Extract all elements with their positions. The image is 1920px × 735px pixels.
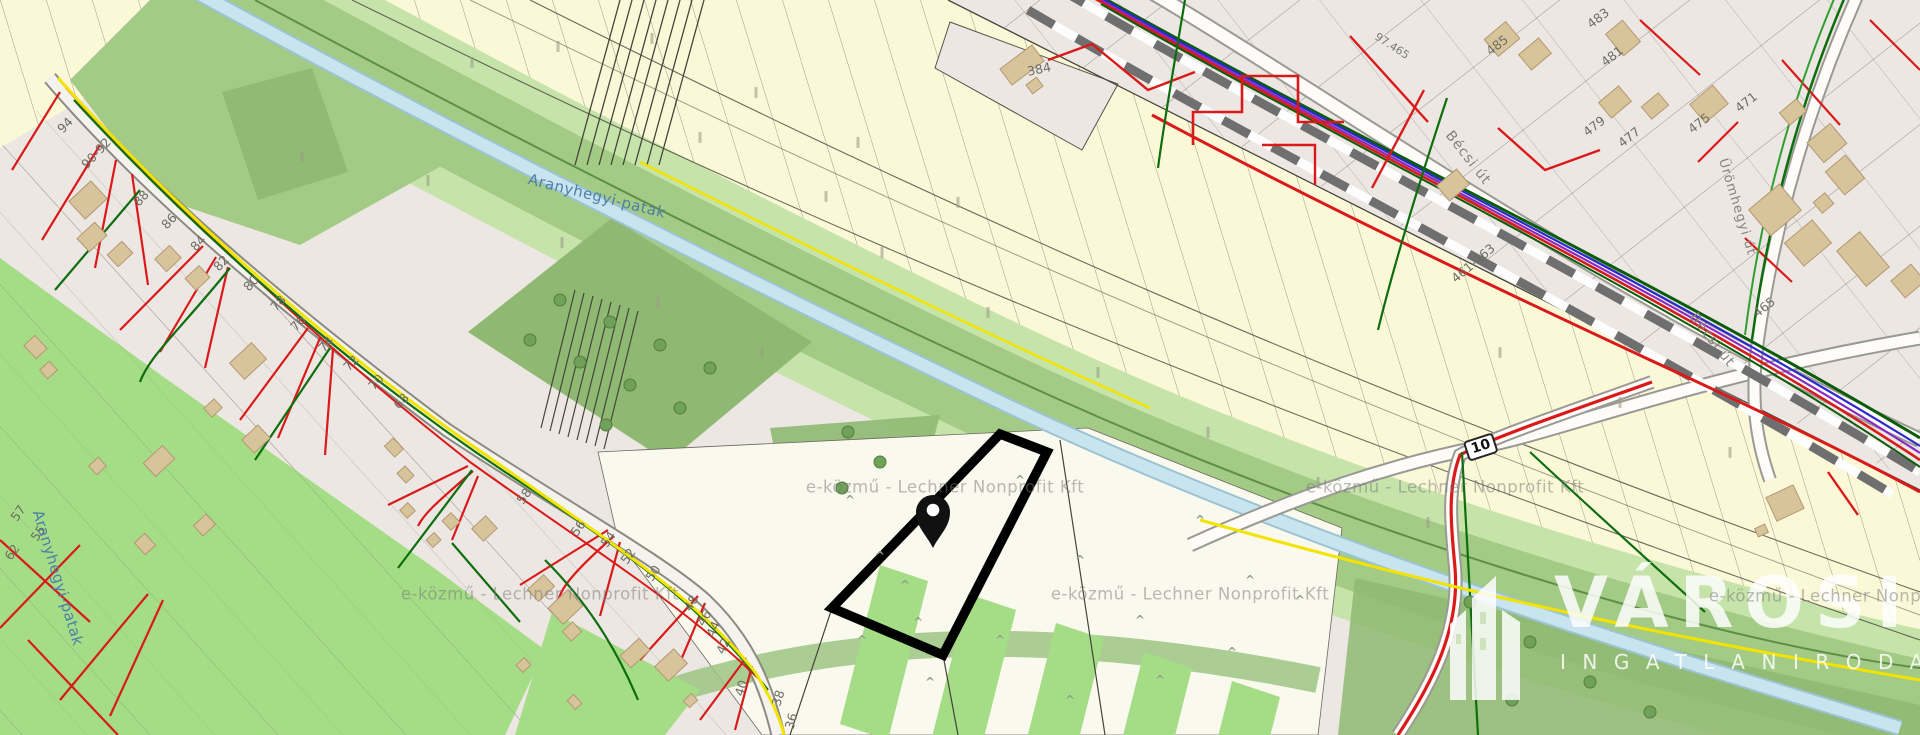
map-canvas[interactable]: VÁROSI INGATLANIRODA Bécsi útBécsi útÜrö… — [0, 0, 1920, 735]
varosi-logo-icon — [1442, 568, 1534, 700]
logo-subtitle: INGATLANIRODA — [1560, 650, 1920, 674]
varosi-ingatlaniroda-logo: VÁROSI INGATLANIRODA — [1442, 568, 1912, 718]
logo-title: VÁROSI — [1554, 562, 1913, 644]
